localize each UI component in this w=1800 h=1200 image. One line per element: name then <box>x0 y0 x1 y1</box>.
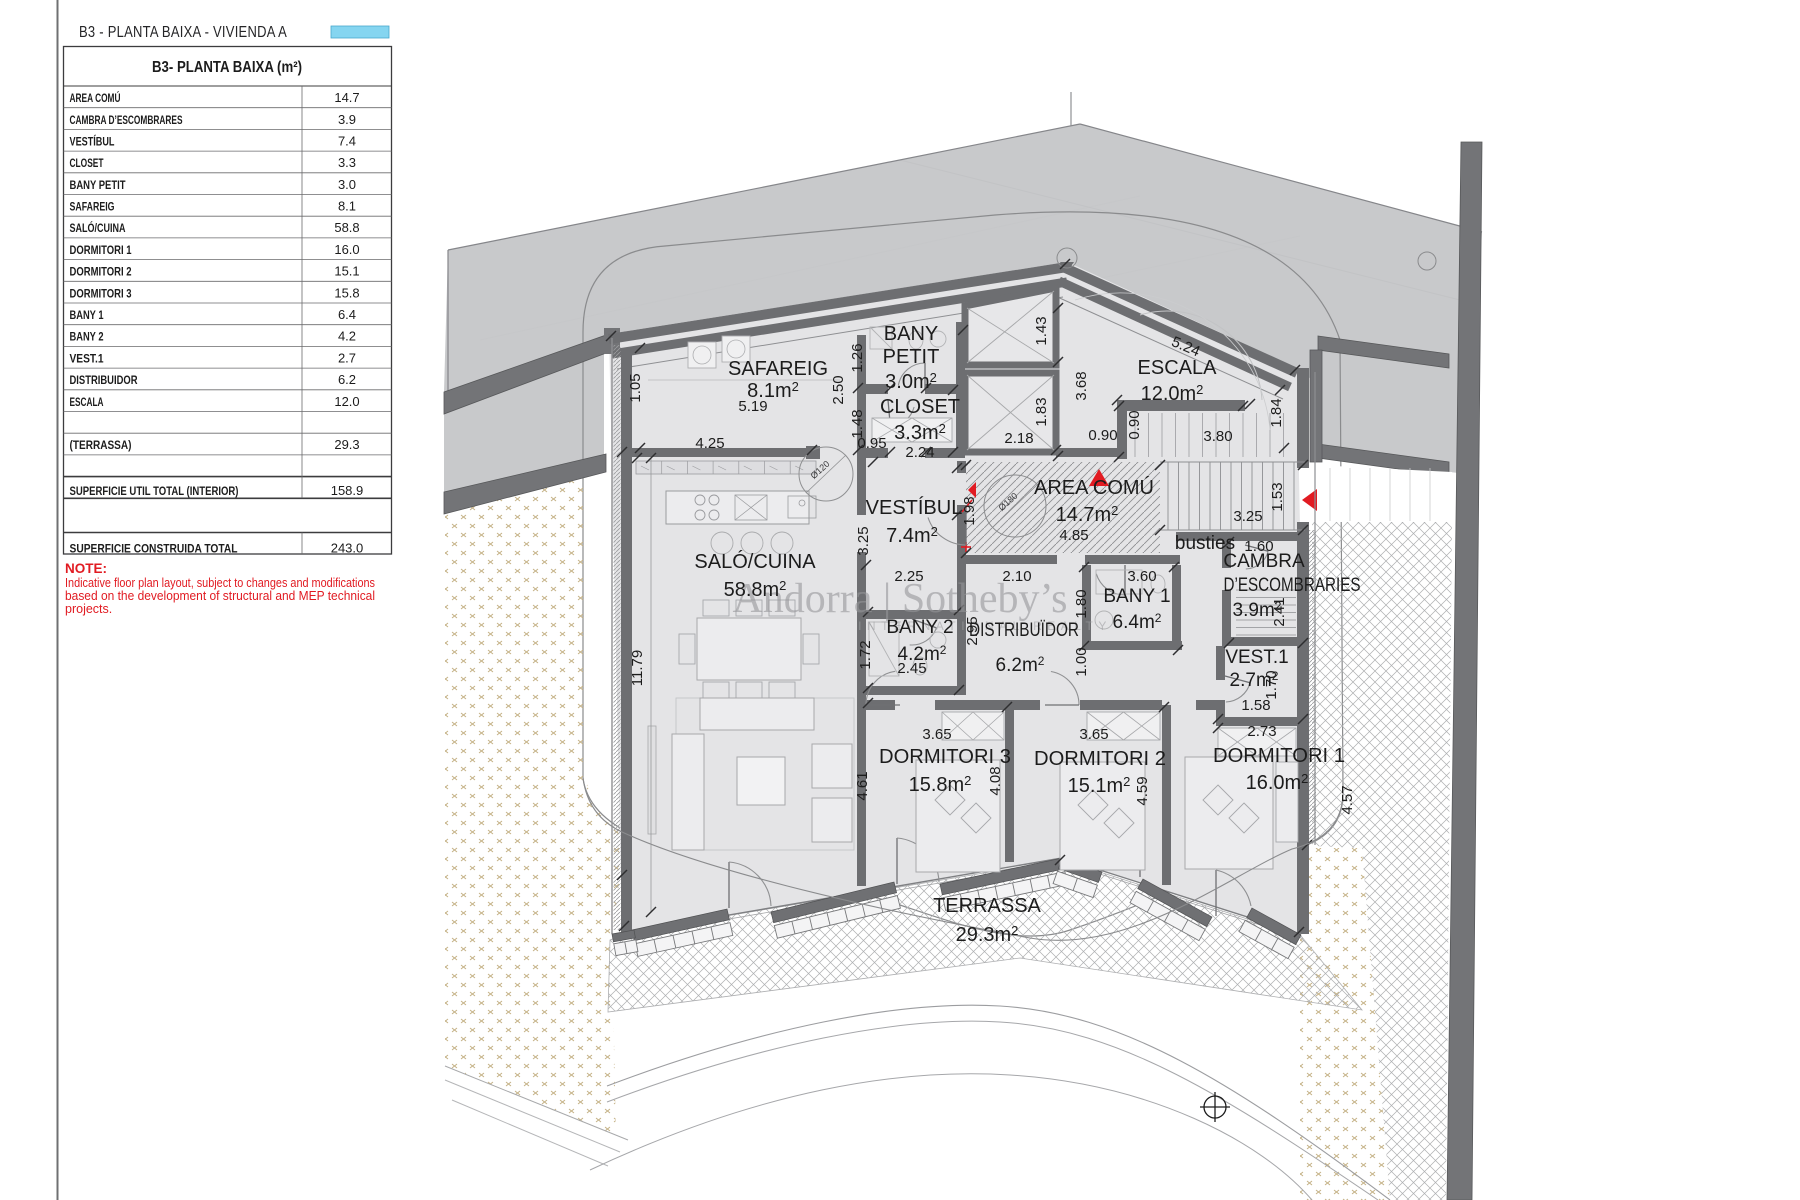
svg-text:2.10: 2.10 <box>1002 568 1031 585</box>
svg-text:7.4m2: 7.4m2 <box>886 524 938 547</box>
svg-text:1.05: 1.05 <box>627 373 644 402</box>
svg-text:2.73: 2.73 <box>1247 723 1276 740</box>
svg-text:DORMITORI 2: DORMITORI 2 <box>70 267 132 279</box>
svg-text:ESCALA: ESCALA <box>1138 357 1218 379</box>
svg-text:4.85: 4.85 <box>1059 527 1088 544</box>
svg-text:SALÓ/CUINA: SALÓ/CUINA <box>70 222 126 235</box>
svg-text:1.00: 1.00 <box>1073 647 1090 676</box>
svg-text:2.41: 2.41 <box>1271 597 1288 626</box>
svg-text:12.0m2: 12.0m2 <box>1141 382 1204 405</box>
svg-text:29.3: 29.3 <box>334 437 359 452</box>
svg-text:158.9: 158.9 <box>331 483 364 498</box>
svg-text:DORMITORI 1: DORMITORI 1 <box>1213 745 1345 767</box>
svg-text:DORMITORI 2: DORMITORI 2 <box>1034 748 1166 770</box>
svg-text:1.84: 1.84 <box>1268 398 1285 427</box>
svg-text:B3- PLANTA BAIXA (m²): B3- PLANTA BAIXA (m²) <box>152 59 302 76</box>
svg-text:3.80: 3.80 <box>1203 428 1232 445</box>
svg-text:5.19: 5.19 <box>738 398 767 415</box>
svg-text:58.8: 58.8 <box>334 220 359 235</box>
svg-text:4.61: 4.61 <box>854 771 871 800</box>
svg-text:3.0: 3.0 <box>338 177 356 192</box>
svg-text:1.53: 1.53 <box>1269 482 1286 511</box>
svg-text:BANY 2: BANY 2 <box>886 617 953 638</box>
svg-text:Indicative floor plan layout,: Indicative floor plan layout, subject to… <box>65 576 375 590</box>
svg-text:1.83: 1.83 <box>1033 397 1050 426</box>
svg-text:SAFAREIG: SAFAREIG <box>70 202 115 214</box>
svg-text:BANY 1: BANY 1 <box>70 310 104 322</box>
svg-text:8.1: 8.1 <box>338 199 356 214</box>
svg-text:3.25: 3.25 <box>855 526 872 555</box>
svg-text:15.8: 15.8 <box>334 285 359 300</box>
svg-text:29.3m2: 29.3m2 <box>956 923 1019 946</box>
svg-text:BANY PETIT: BANY PETIT <box>70 180 126 192</box>
svg-text:1.48: 1.48 <box>849 409 866 438</box>
svg-text:4.2: 4.2 <box>338 329 356 344</box>
svg-text:12.0: 12.0 <box>334 394 359 409</box>
svg-text:2.24: 2.24 <box>905 444 934 461</box>
svg-text:SUPERFICIE UTIL TOTAL (INTERIO: SUPERFICIE UTIL TOTAL (INTERIOR) <box>70 486 239 498</box>
svg-text:1.72: 1.72 <box>857 640 874 669</box>
svg-text:4.57: 4.57 <box>1339 785 1356 814</box>
svg-text:SALÓ/CUINA: SALÓ/CUINA <box>694 550 816 573</box>
svg-text:15.1m2: 15.1m2 <box>1068 774 1131 797</box>
svg-text:16.0: 16.0 <box>334 242 359 257</box>
svg-text:14.7: 14.7 <box>334 90 359 105</box>
svg-text:1.43: 1.43 <box>1033 316 1050 345</box>
svg-text:2.25: 2.25 <box>894 568 923 585</box>
svg-text:DISTRIBUIDOR: DISTRIBUIDOR <box>70 375 139 387</box>
svg-text:2.7: 2.7 <box>338 350 356 365</box>
svg-text:15.8m2: 15.8m2 <box>909 773 972 796</box>
svg-text:SUPERFICIE CONSTRUIDA TOTAL: SUPERFICIE CONSTRUIDA TOTAL <box>70 543 238 555</box>
svg-text:243.0: 243.0 <box>331 540 364 555</box>
svg-text:6.2: 6.2 <box>338 372 356 387</box>
svg-text:16.0m2: 16.0m2 <box>1246 771 1309 794</box>
svg-text:15.1: 15.1 <box>334 264 359 279</box>
svg-text:1.98: 1.98 <box>961 496 978 525</box>
svg-text:6.4: 6.4 <box>338 307 356 322</box>
svg-text:0.90: 0.90 <box>1088 427 1117 444</box>
svg-text:4.08: 4.08 <box>987 766 1004 795</box>
svg-text:2.45: 2.45 <box>897 660 926 677</box>
svg-text:3.60: 3.60 <box>1127 568 1156 585</box>
svg-text:3.3: 3.3 <box>338 155 356 170</box>
svg-text:DISTRIBUÏDOR: DISTRIBUÏDOR <box>969 620 1079 641</box>
svg-text:PETIT: PETIT <box>883 346 940 368</box>
svg-text:based on the development of st: based on the development of structural a… <box>65 589 375 603</box>
svg-text:4.25: 4.25 <box>695 435 724 452</box>
svg-text:CAMBRA D’ESCOMBRARES: CAMBRA D’ESCOMBRARES <box>70 115 183 127</box>
svg-text:1.80: 1.80 <box>1073 589 1090 618</box>
svg-text:2.18: 2.18 <box>1004 430 1033 447</box>
svg-text:NOTE:: NOTE: <box>65 561 107 576</box>
svg-text:6.2m2: 6.2m2 <box>996 654 1045 676</box>
svg-text:BANY 1: BANY 1 <box>1103 586 1170 607</box>
svg-text:VEST.1: VEST.1 <box>1225 647 1288 668</box>
svg-text:DORMITORI 3: DORMITORI 3 <box>879 746 1011 768</box>
svg-text:3.25: 3.25 <box>1233 508 1262 525</box>
svg-text:ESCALA: ESCALA <box>70 397 104 409</box>
svg-text:CLOSET: CLOSET <box>70 158 104 170</box>
svg-text:BANY: BANY <box>884 323 938 345</box>
svg-text:3.9: 3.9 <box>338 112 356 127</box>
svg-text:1.26: 1.26 <box>849 343 866 372</box>
svg-text:3.65: 3.65 <box>922 726 951 743</box>
svg-text:DORMITORI 3: DORMITORI 3 <box>70 288 132 300</box>
svg-text:4.59: 4.59 <box>1134 776 1151 805</box>
svg-text:AREA COMÚ: AREA COMÚ <box>70 92 121 105</box>
svg-text:3.65: 3.65 <box>1079 726 1108 743</box>
svg-text:14.7m2: 14.7m2 <box>1056 503 1119 526</box>
svg-text:58.8m2: 58.8m2 <box>724 578 787 601</box>
svg-text:0.90: 0.90 <box>1126 410 1143 439</box>
svg-text:VEST.1: VEST.1 <box>70 353 105 365</box>
svg-text:VESTÍBUL: VESTÍBUL <box>866 496 963 519</box>
svg-text:VESTÍBUL: VESTÍBUL <box>70 135 115 148</box>
svg-text:busties: busties <box>1175 533 1235 554</box>
svg-text:2.50: 2.50 <box>830 375 847 404</box>
svg-text:TERRASSA: TERRASSA <box>933 895 1041 917</box>
svg-text:AREA COMÚ: AREA COMÚ <box>1034 476 1154 499</box>
svg-text:11.79: 11.79 <box>629 650 646 686</box>
svg-text:3.0m2: 3.0m2 <box>885 370 937 393</box>
svg-text:7.4: 7.4 <box>338 133 356 148</box>
svg-text:2.95: 2.95 <box>964 616 981 645</box>
svg-text:1.70: 1.70 <box>1263 670 1280 699</box>
svg-text:DORMITORI 1: DORMITORI 1 <box>70 245 132 257</box>
svg-text:CLOSET: CLOSET <box>880 396 960 418</box>
svg-text:3.68: 3.68 <box>1073 371 1090 400</box>
svg-text:D’ESCOMBRARIES: D’ESCOMBRARIES <box>1224 575 1361 596</box>
svg-text:B3 - PLANTA BAIXA - VIVIENDA A: B3 - PLANTA BAIXA - VIVIENDA A <box>79 24 287 41</box>
svg-text:1.60: 1.60 <box>1244 538 1273 555</box>
svg-text:6.4m2: 6.4m2 <box>1113 611 1162 633</box>
svg-text:3.3m2: 3.3m2 <box>894 421 946 444</box>
svg-text:SAFAREIG: SAFAREIG <box>728 358 828 380</box>
svg-text:(TERRASSA): (TERRASSA) <box>70 440 132 452</box>
svg-text:BANY 2: BANY 2 <box>70 332 104 344</box>
svg-text:projects.: projects. <box>65 602 112 616</box>
